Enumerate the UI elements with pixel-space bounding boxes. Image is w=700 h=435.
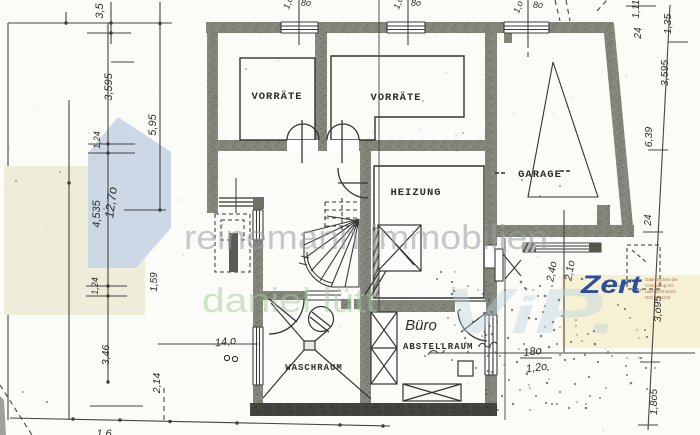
svg-text:4,535: 4,535 [91, 199, 103, 227]
svg-text:GARAGE: GARAGE [518, 169, 562, 181]
svg-text:1,6: 1,6 [96, 428, 112, 435]
svg-text:5,95: 5,95 [147, 113, 159, 135]
svg-text:8o: 8o [411, 0, 421, 8]
svg-text:daniel lütt: daniel lütt [202, 282, 378, 320]
svg-text:Consulting AG: Consulting AG [645, 283, 674, 288]
svg-text:nach DIN Norm: nach DIN Norm [645, 289, 676, 294]
svg-text:3,5: 3,5 [94, 2, 106, 18]
svg-text:3,595: 3,595 [659, 60, 671, 86]
svg-text:6,39: 6,39 [643, 127, 655, 148]
svg-text:DIN 9001/22: DIN 9001/22 [645, 295, 671, 300]
svg-text:24: 24 [633, 27, 644, 40]
svg-text:2,14: 2,14 [151, 373, 163, 395]
svg-text:reinemann immobilien: reinemann immobilien [184, 219, 548, 257]
svg-text:Büro: Büro [405, 317, 437, 334]
svg-text:3,595: 3,595 [103, 72, 115, 100]
svg-text:8o: 8o [533, 0, 543, 10]
svg-text:3,46: 3,46 [100, 345, 112, 366]
svg-text:Gütezeichen der: Gütezeichen der [645, 277, 679, 282]
svg-text:1,11: 1,11 [631, 0, 642, 18]
svg-text:Zert: Zert [580, 271, 643, 299]
svg-text:1,59: 1,59 [149, 272, 160, 292]
svg-text:1,24: 1,24 [92, 131, 102, 149]
svg-text:24: 24 [643, 214, 654, 227]
svg-text:VORRÄTE: VORRÄTE [370, 91, 421, 104]
svg-text:8o: 8o [301, 0, 311, 8]
svg-text:1,8o5: 1,8o5 [648, 389, 660, 415]
svg-text:WASCHRAUM: WASCHRAUM [285, 363, 343, 373]
svg-text:1,24: 1,24 [90, 277, 100, 295]
svg-text:HEIZUNG: HEIZUNG [390, 187, 441, 199]
svg-text:1,35: 1,35 [662, 14, 674, 35]
svg-text:VORRÄTE: VORRÄTE [251, 90, 302, 103]
